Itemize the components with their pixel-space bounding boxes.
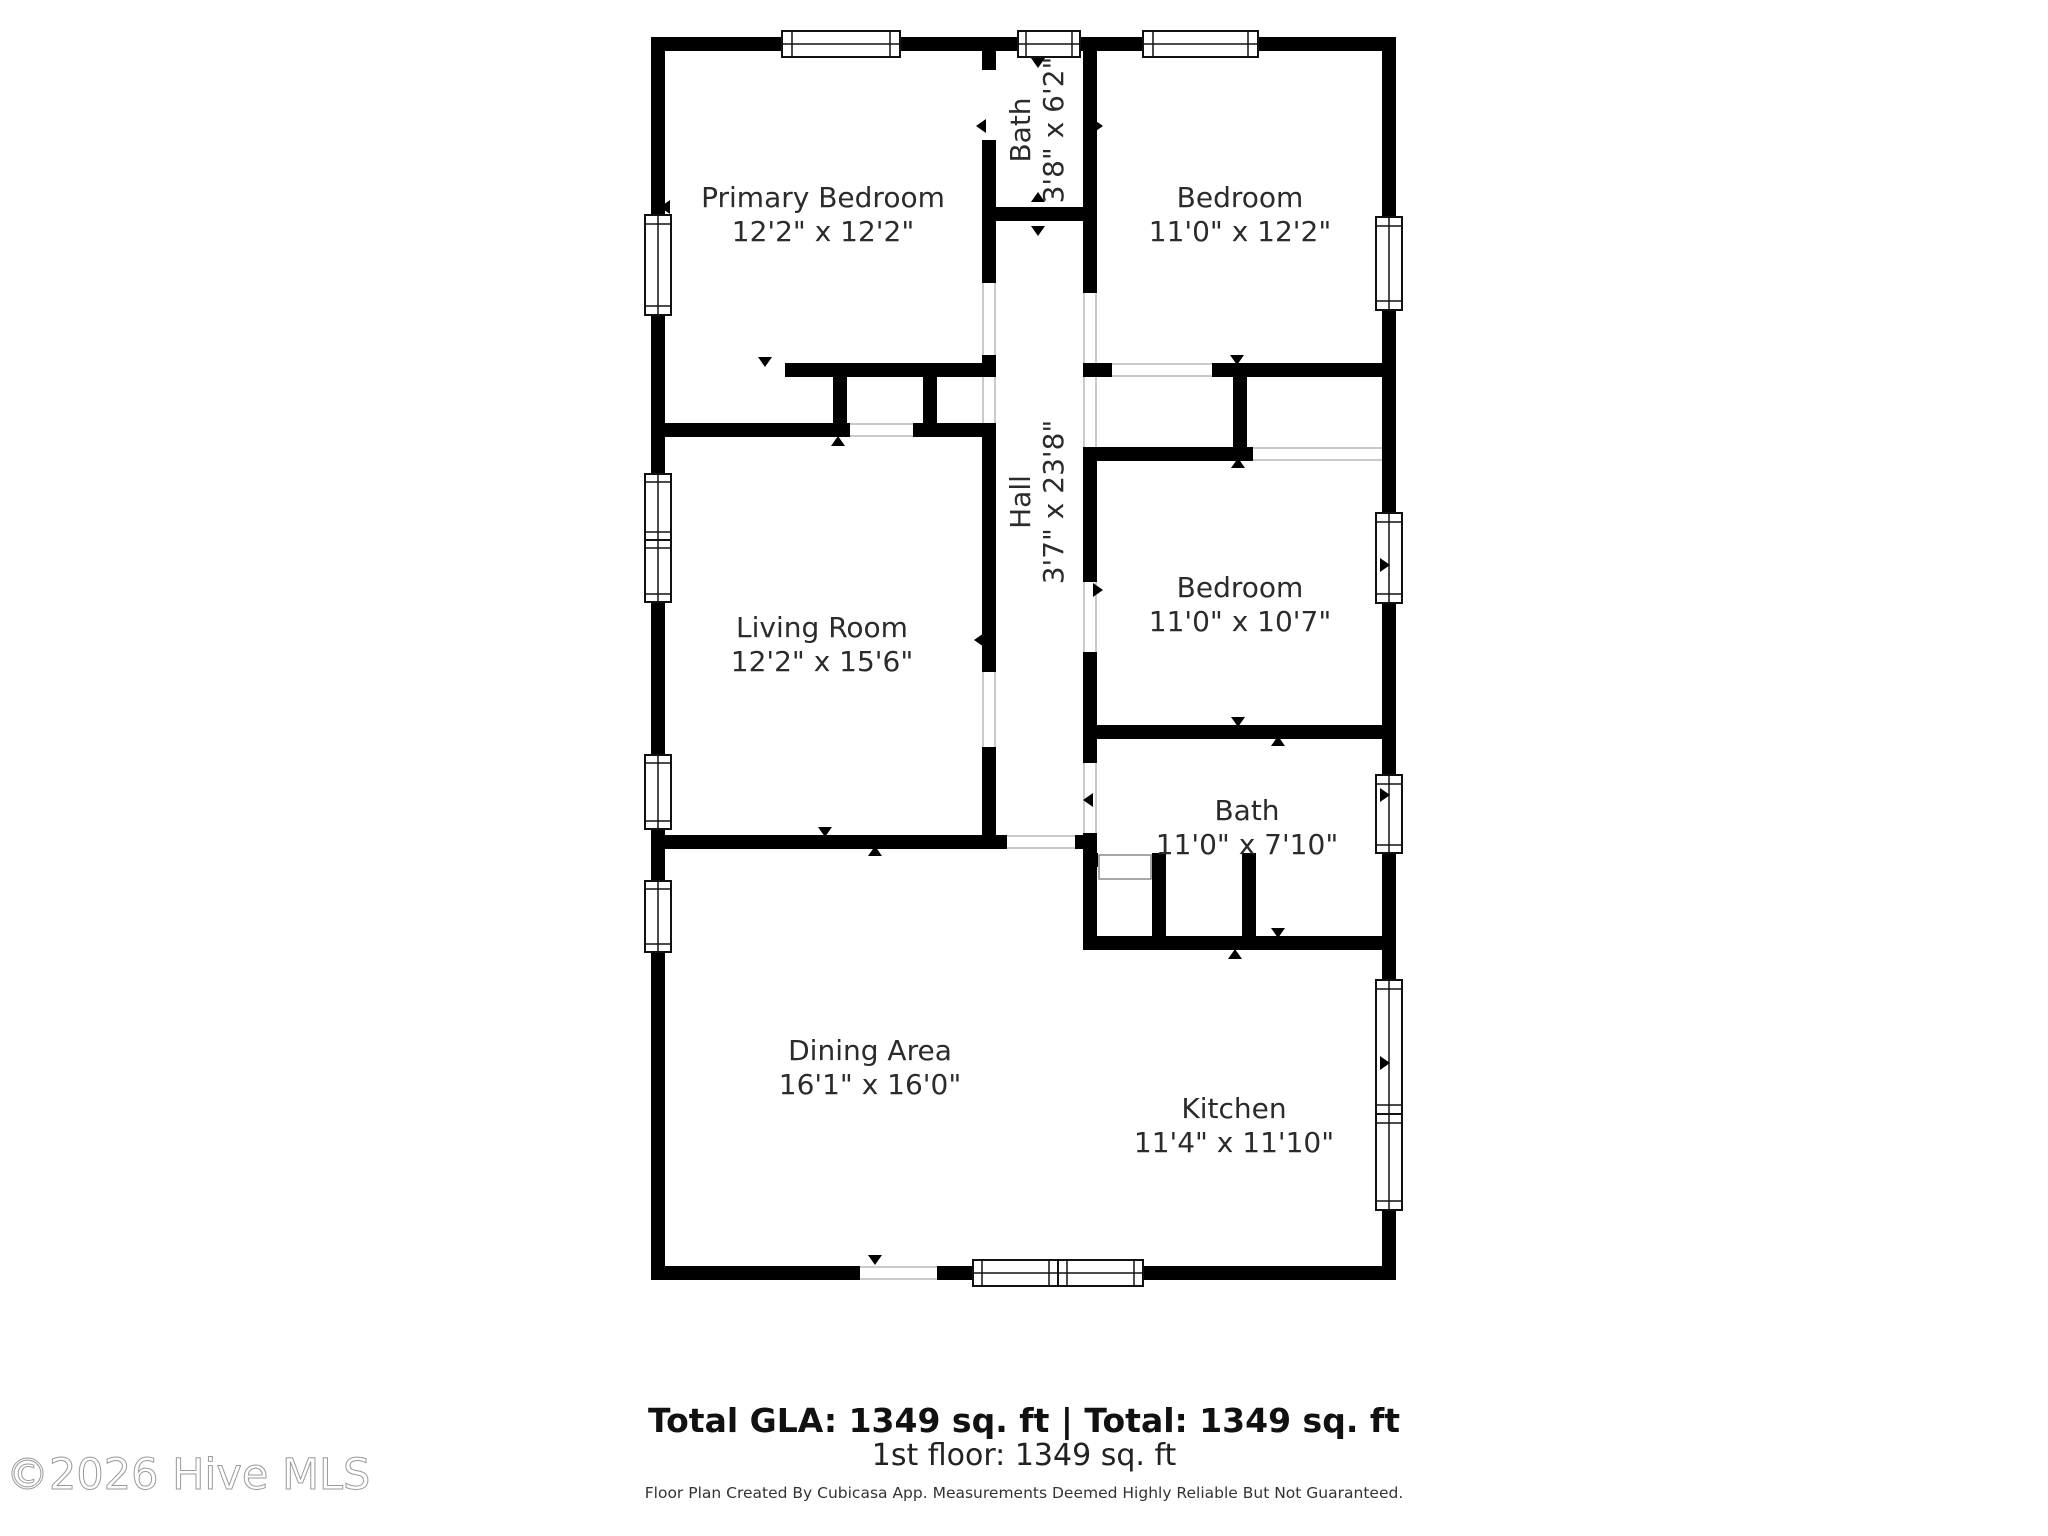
window [645, 474, 671, 540]
room-dims: 11'0" x 12'2" [1149, 215, 1331, 248]
floor-plan: Primary Bedroom 12'2" x 12'2" Bath 3'8" … [0, 0, 2048, 1536]
room-dims: 12'2" x 12'2" [732, 215, 914, 248]
closet-door [1099, 855, 1151, 879]
room-dims: 11'4" x 11'10" [1134, 1126, 1334, 1159]
window [1376, 1114, 1402, 1210]
door-opening [1083, 293, 1097, 363]
room-name: Kitchen [1181, 1092, 1286, 1125]
door-marker [758, 357, 772, 367]
door-marker [868, 1255, 882, 1265]
window [1376, 980, 1402, 1114]
room-label-hall: Hall 3'7" x 23'8" [1004, 420, 1070, 585]
disclaimer-text: Floor Plan Created By Cubicasa App. Meas… [645, 1484, 1404, 1502]
room-name: Hall [1004, 475, 1037, 529]
window [973, 1260, 1058, 1286]
room-dims: 11'0" x 7'10" [1156, 828, 1338, 861]
first-floor-text: 1st floor: 1349 sq. ft [872, 1438, 1177, 1473]
door-marker [831, 436, 845, 446]
window [645, 755, 671, 829]
room-name: Bedroom [1177, 571, 1304, 604]
window [1058, 1260, 1143, 1286]
closet-opening [1253, 447, 1382, 461]
closet-opening [850, 423, 913, 437]
room-label-dining-area: Dining Area 16'1" x 16'0" [779, 1034, 961, 1101]
room-name: Living Room [736, 611, 908, 644]
wall-opening [982, 377, 996, 423]
room-label-bedroom-1: Bedroom 11'0" x 12'2" [1149, 181, 1331, 248]
room-dims: 12'2" x 15'6" [731, 645, 913, 678]
door-opening [982, 672, 996, 747]
door-marker [974, 633, 984, 647]
watermark-text: ©2026 Hive MLS [6, 1450, 370, 1500]
room-dims: 3'7" x 23'8" [1037, 420, 1070, 585]
wall-opening [1083, 377, 1097, 447]
window [1376, 775, 1402, 853]
room-dims: 16'1" x 16'0" [779, 1068, 961, 1101]
wall-opening [1007, 835, 1075, 849]
total-gla-text: Total GLA: 1349 sq. ft | Total: 1349 sq.… [648, 1401, 1400, 1440]
door-marker [1093, 119, 1103, 133]
window [1376, 217, 1402, 310]
room-label-kitchen: Kitchen 11'4" x 11'10" [1134, 1092, 1334, 1159]
room-label-living-room: Living Room 12'2" x 15'6" [731, 611, 913, 678]
window [645, 540, 671, 602]
window [782, 31, 900, 57]
room-dims: 11'0" x 10'7" [1149, 605, 1331, 638]
room-dims: 3'8" x 6'2" [1037, 57, 1070, 204]
window [1376, 513, 1402, 603]
room-name: Bath [1214, 794, 1279, 827]
window [645, 215, 671, 315]
room-label-bath-top: Bath 3'8" x 6'2" [1004, 57, 1070, 204]
room-name: Bedroom [1177, 181, 1304, 214]
room-label-primary-bedroom: Primary Bedroom 12'2" x 12'2" [701, 181, 945, 248]
door-marker [1228, 949, 1242, 959]
door-opening [982, 283, 996, 355]
summary-group: Total GLA: 1349 sq. ft | Total: 1349 sq.… [645, 1401, 1404, 1502]
room-name: Bath [1004, 97, 1037, 162]
door-opening [1112, 363, 1212, 377]
room-label-bath-lower: Bath 11'0" x 7'10" [1156, 794, 1338, 861]
window [645, 881, 671, 952]
room-name: Dining Area [788, 1034, 952, 1067]
door-marker [976, 119, 986, 133]
entry-door-opening [860, 1266, 937, 1280]
window [1143, 31, 1258, 57]
window [1018, 31, 1080, 57]
room-name: Primary Bedroom [701, 181, 945, 214]
door-marker [1031, 226, 1045, 236]
room-labels-group: Primary Bedroom 12'2" x 12'2" Bath 3'8" … [701, 57, 1338, 1159]
room-label-bedroom-2: Bedroom 11'0" x 10'7" [1149, 571, 1331, 638]
door-marker [1093, 583, 1103, 597]
